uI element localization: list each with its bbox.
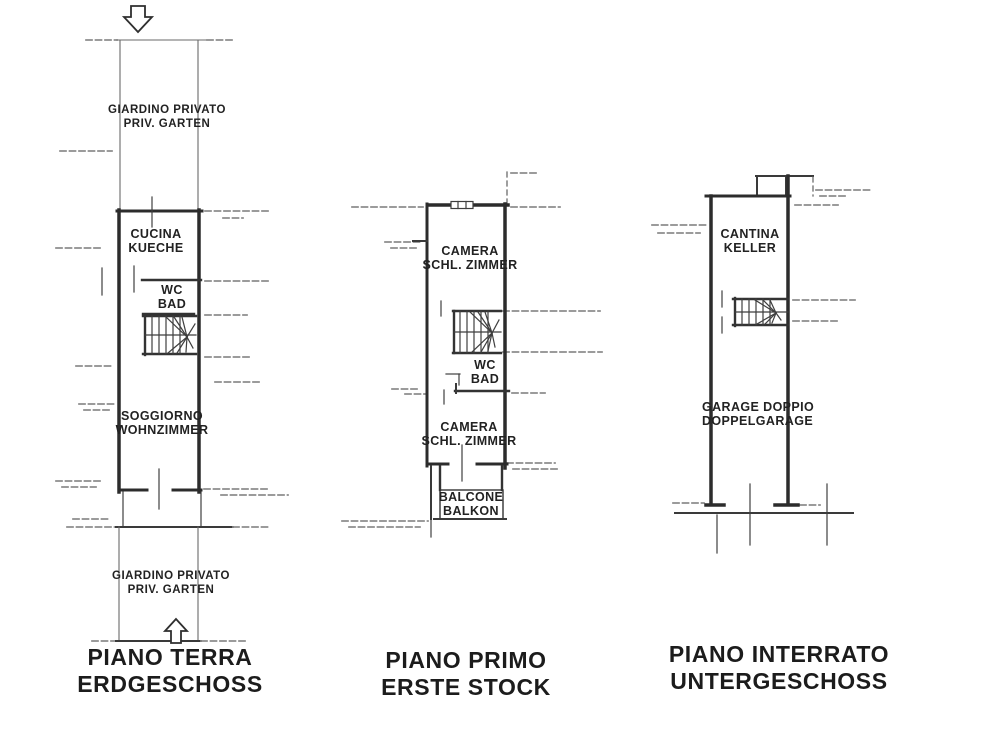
primo-dimension-marks bbox=[342, 172, 602, 527]
floor-plan-sheet: GIARDINO PRIVATO PRIV. GARTEN CUCINA KUE… bbox=[0, 0, 988, 734]
title-piano-terra: PIANO TERRA ERDGESCHOSS bbox=[77, 644, 263, 698]
primo-window bbox=[451, 202, 473, 209]
label-living-room: SOGGIORNO WOHNZIMMER bbox=[116, 410, 209, 437]
primo-staircase bbox=[453, 311, 501, 353]
label-bedroom-bottom: CAMERA SCHL. ZIMMER bbox=[421, 421, 516, 448]
label-balcony: BALCONE BALKON bbox=[439, 491, 504, 518]
label-garden-top: GIARDINO PRIVATO PRIV. GARTEN bbox=[108, 103, 226, 131]
plan-piano-terra bbox=[56, 6, 288, 643]
entrance-down-arrow-icon bbox=[124, 6, 152, 32]
terra-garden-bottom bbox=[67, 492, 268, 641]
exit-up-arrow-icon bbox=[165, 619, 187, 643]
title-piano-primo: PIANO PRIMO ERSTE STOCK bbox=[381, 647, 551, 701]
interrato-staircase bbox=[733, 298, 788, 326]
title-piano-interrato: PIANO INTERRATO UNTERGESCHOSS bbox=[669, 641, 889, 695]
label-wc-primo: WC BAD bbox=[471, 359, 499, 386]
label-bedroom-top: CAMERA SCHL. ZIMMER bbox=[422, 245, 517, 272]
plan-piano-primo bbox=[342, 172, 602, 537]
label-kitchen: CUCINA KUECHE bbox=[128, 228, 183, 255]
label-garden-bottom: GIARDINO PRIVATO PRIV. GARTEN bbox=[112, 569, 230, 597]
label-garage: GARAGE DOPPIO DOPPELGARAGE bbox=[702, 401, 814, 428]
label-wc-terra: WC BAD bbox=[158, 284, 186, 311]
terra-staircase bbox=[143, 315, 196, 355]
label-cellar: CANTINA KELLER bbox=[720, 228, 779, 255]
